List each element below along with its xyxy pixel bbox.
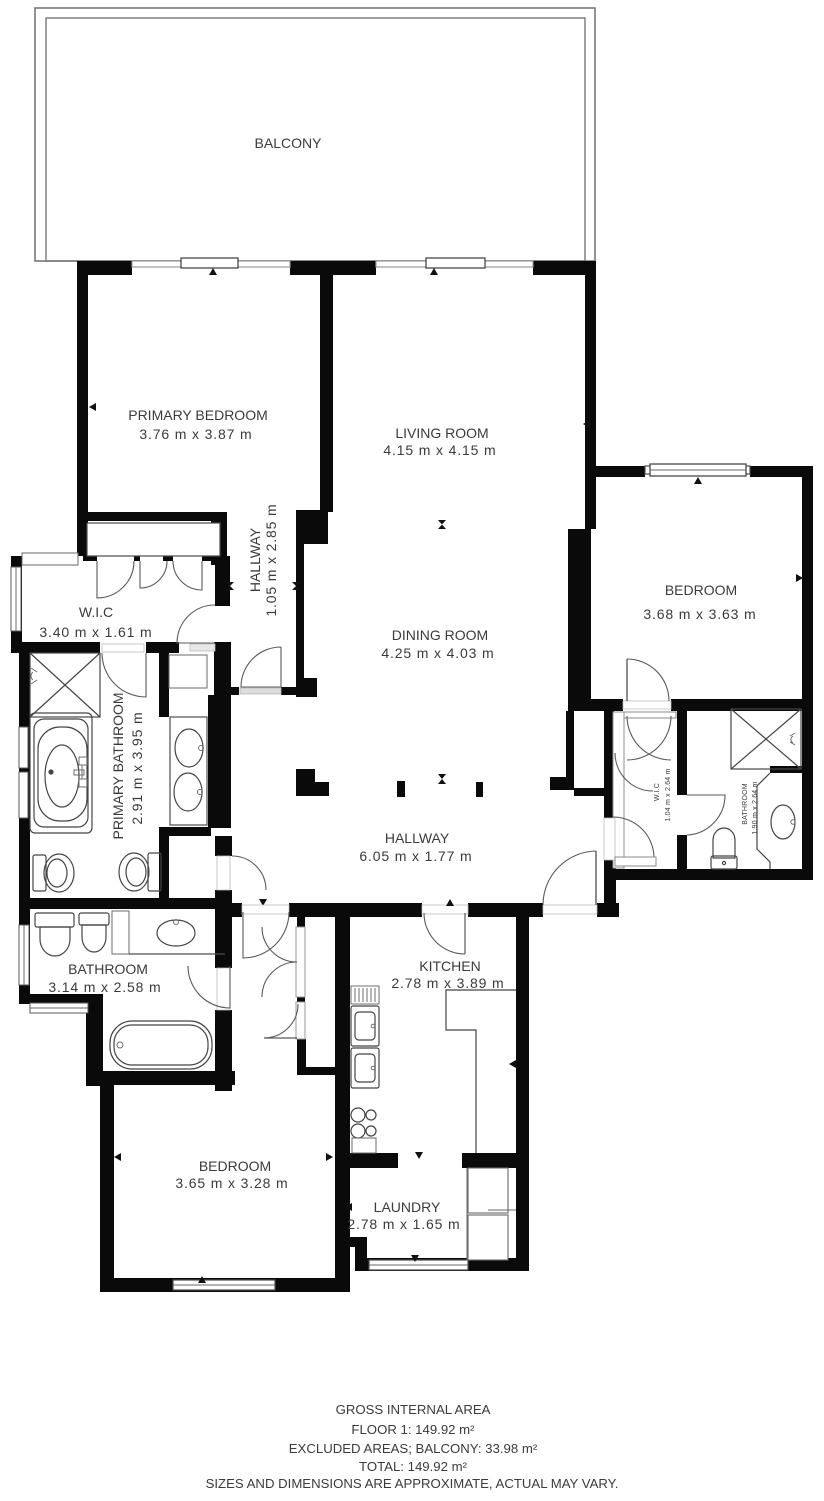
svg-text:3.76 m x 3.87 m: 3.76 m x 3.87 m <box>139 426 252 442</box>
svg-text:2.91 m x 3.95 m: 2.91 m x 3.95 m <box>129 711 145 824</box>
svg-text:BEDROOM: BEDROOM <box>199 1158 271 1174</box>
svg-text:3.65 m x 3.28 m: 3.65 m x 3.28 m <box>175 1175 288 1191</box>
svg-text:BATHROOM: BATHROOM <box>742 783 749 825</box>
svg-text:DINING ROOM: DINING ROOM <box>392 627 488 643</box>
svg-text:2.78 m x 1.65 m: 2.78 m x 1.65 m <box>347 1216 460 1232</box>
svg-text:6.05 m x 1.77 m: 6.05 m x 1.77 m <box>359 848 472 864</box>
svg-text:3.14 m x 2.58 m: 3.14 m x 2.58 m <box>48 979 161 995</box>
svg-text:4.15 m x 4.15 m: 4.15 m x 4.15 m <box>383 442 496 458</box>
svg-text:1.90 m x 2.64 m: 1.90 m x 2.64 m <box>752 781 759 834</box>
svg-text:BALCONY: BALCONY <box>255 135 323 151</box>
svg-text:W.I.C: W.I.C <box>79 604 113 620</box>
svg-text:PRIMARY BEDROOM: PRIMARY BEDROOM <box>128 407 268 423</box>
svg-text:LAUNDRY: LAUNDRY <box>374 1199 441 1215</box>
svg-text:4.25 m x 4.03 m: 4.25 m x 4.03 m <box>381 645 494 661</box>
svg-text:BEDROOM: BEDROOM <box>665 582 737 598</box>
svg-text:SIZES AND DIMENSIONS ARE APPRO: SIZES AND DIMENSIONS ARE APPROXIMATE, AC… <box>206 1476 619 1491</box>
svg-text:PRIMARY BATHROOM: PRIMARY BATHROOM <box>110 692 126 839</box>
svg-text:1.04 m x 2.64 m: 1.04 m x 2.64 m <box>665 768 672 821</box>
svg-text:KITCHEN: KITCHEN <box>419 958 480 974</box>
svg-text:1.05 m x 2.85 m: 1.05 m x 2.85 m <box>263 503 279 616</box>
svg-text:2.78 m x 3.89 m: 2.78 m x 3.89 m <box>391 975 504 991</box>
svg-text:HALLWAY: HALLWAY <box>385 830 450 846</box>
svg-text:3.68 m x 3.63 m: 3.68 m x 3.63 m <box>643 606 756 622</box>
svg-text:3.40 m x 1.61 m: 3.40 m x 1.61 m <box>39 624 152 640</box>
svg-text:LIVING ROOM: LIVING ROOM <box>395 425 488 441</box>
svg-text:FLOOR 1: 149.92 m²: FLOOR 1: 149.92 m² <box>351 1422 475 1437</box>
svg-text:GROSS INTERNAL AREA: GROSS INTERNAL AREA <box>336 1402 491 1417</box>
svg-text:HALLWAY: HALLWAY <box>247 527 263 592</box>
svg-text:TOTAL: 149.92 m²: TOTAL: 149.92 m² <box>359 1459 468 1474</box>
svg-text:W.I.C: W.I.C <box>654 783 661 801</box>
svg-text:EXCLUDED AREAS; BALCONY: 33.98: EXCLUDED AREAS; BALCONY: 33.98 m² <box>289 1441 538 1456</box>
svg-text:BATHROOM: BATHROOM <box>68 961 148 977</box>
